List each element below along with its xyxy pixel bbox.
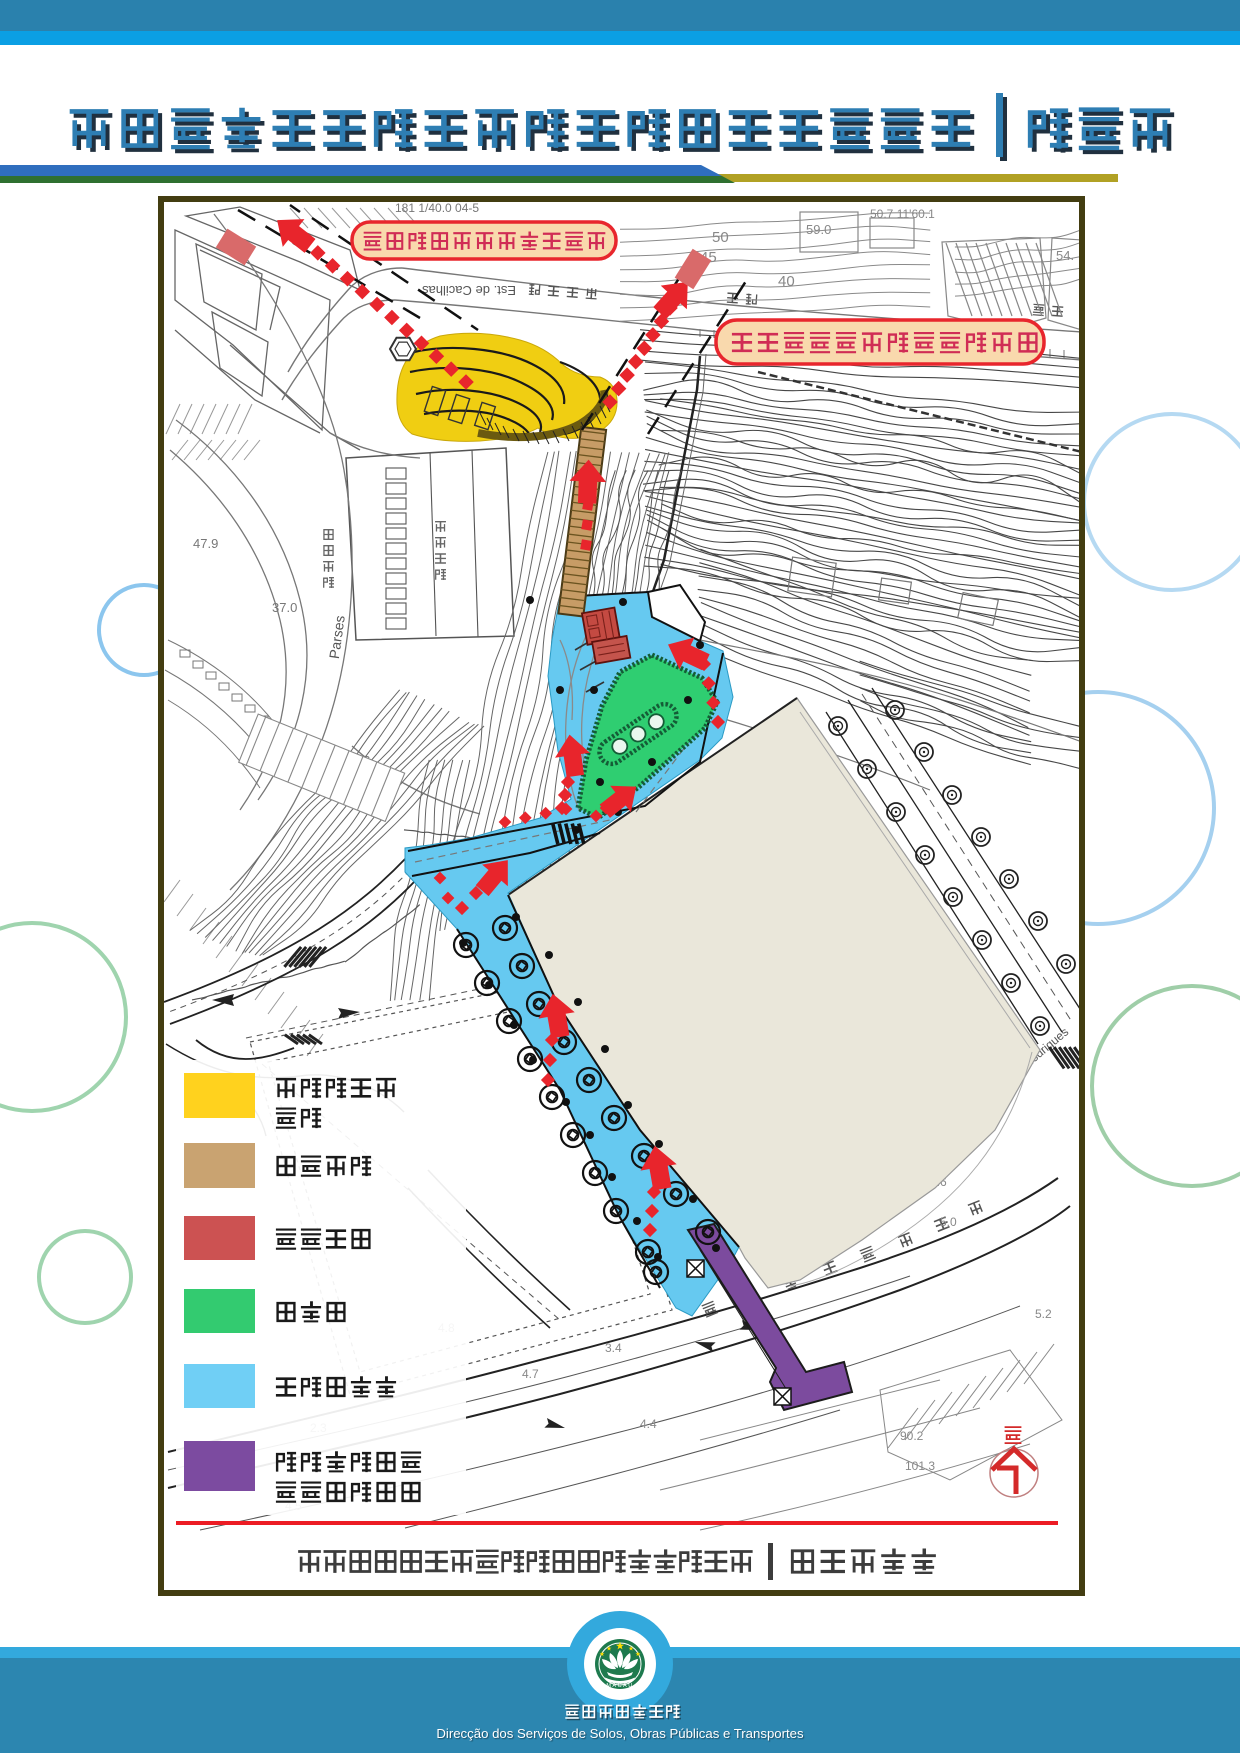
svg-text:5.2: 5.2 — [1035, 1307, 1052, 1321]
svg-text:3.4: 3.4 — [605, 1341, 622, 1355]
svg-text:50: 50 — [712, 229, 729, 246]
svg-text:Direcção dos Serviços de Solos: Direcção dos Serviços de Solos, Obras Pú… — [436, 1726, 804, 1741]
svg-text:Est. de Cacilhas: Est. de Cacilhas — [422, 283, 516, 298]
svg-text:4.7: 4.7 — [522, 1367, 539, 1381]
svg-text:181 1/40.0 04-5: 181 1/40.0 04-5 — [395, 201, 479, 215]
svg-text:47.9: 47.9 — [193, 536, 218, 551]
svg-text:54.: 54. — [1056, 248, 1074, 263]
svg-text:5.0: 5.0 — [940, 1215, 957, 1229]
svg-text:40: 40 — [778, 273, 795, 290]
svg-text:37.0: 37.0 — [272, 600, 297, 615]
svg-text:4.4: 4.4 — [640, 1417, 657, 1431]
svg-text:MACAU: MACAU — [606, 1683, 633, 1689]
svg-text:59.0: 59.0 — [806, 222, 831, 237]
svg-text:50.7 11'60.1: 50.7 11'60.1 — [870, 207, 935, 221]
